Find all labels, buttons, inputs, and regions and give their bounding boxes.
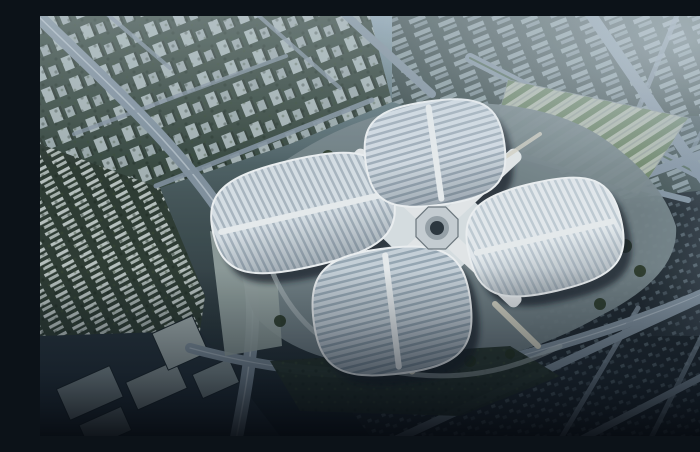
aerial-render: Aerial rendering of a four-petal clover-…: [40, 16, 700, 436]
bottom-vignette: [40, 16, 700, 436]
scene-canvas: [40, 16, 700, 436]
